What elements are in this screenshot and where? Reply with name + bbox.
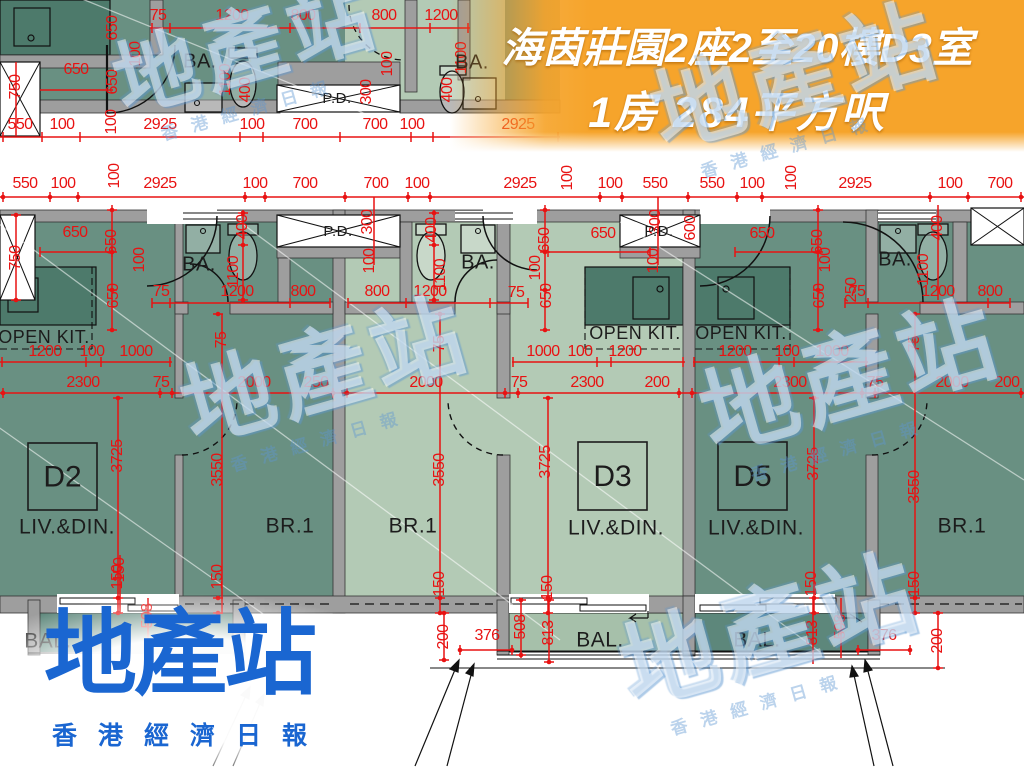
dim-node — [14, 298, 19, 303]
dim-label: 550 — [8, 116, 34, 133]
banner-title: 海茵莊園2座2至20樓D3室 — [450, 14, 1024, 74]
dim-label: 100 — [405, 175, 431, 192]
unit-label: D5 — [733, 460, 771, 493]
room-label: BR.1 — [389, 515, 438, 538]
dim-label: 100 — [127, 41, 144, 67]
dim-label: 100 — [559, 165, 576, 191]
dim-label: 1100 — [432, 258, 449, 291]
dim-label: 100 — [379, 51, 396, 77]
dim-node — [516, 391, 521, 396]
room-label: BAL. — [576, 629, 624, 652]
dim-node — [331, 391, 336, 396]
dim-label: 75 — [150, 7, 167, 24]
dim-node — [1, 195, 6, 200]
dim-node — [116, 396, 121, 401]
dim-label: 100 — [103, 109, 120, 135]
site-logo-subtitle: 香港經濟日報 — [52, 716, 328, 752]
dim-node — [913, 611, 918, 616]
dim-label: 2925 — [503, 175, 537, 192]
dim-label: 508 — [512, 614, 529, 640]
dim-node — [428, 195, 433, 200]
dim-label: 1100 — [915, 253, 932, 286]
dim-label: 2925 — [143, 116, 177, 133]
dim-label: 75 — [431, 335, 448, 352]
dim-label: 250 — [304, 374, 330, 391]
dim-label: 400 — [929, 215, 946, 241]
dim-node — [546, 396, 551, 401]
floorplan-page: 7512008008001200650100650100750650110040… — [0, 0, 1024, 768]
dim-label: 750 — [7, 74, 24, 100]
dim-node — [519, 598, 524, 603]
dim-node — [76, 195, 81, 200]
dim-node — [1019, 195, 1024, 200]
dim-node — [936, 611, 941, 616]
dim-label: 100 — [740, 175, 766, 192]
dim-label: 100 — [598, 175, 624, 192]
room-label: OPEN KIT. — [0, 327, 90, 347]
dim-label: 2000 — [237, 374, 271, 391]
dim-node — [216, 312, 221, 317]
dim-label: 100 — [775, 343, 801, 360]
dim-node — [170, 391, 175, 396]
room-label: BR.1 — [938, 515, 987, 538]
dim-label: 150 — [906, 571, 923, 597]
dim-node — [110, 208, 115, 213]
dim-label: 650 — [64, 61, 90, 78]
room-label: LIV.&DIN. — [708, 517, 804, 540]
dim-label: 800 — [291, 7, 317, 24]
room-label: BR.1 — [266, 515, 315, 538]
dim-node — [860, 391, 865, 396]
dim-node — [503, 391, 508, 396]
dim-node — [686, 195, 691, 200]
dim-label: 200 — [995, 374, 1021, 391]
dim-label: 100 — [817, 247, 834, 273]
dim-label: 100 — [106, 163, 123, 189]
unit-label: D3 — [593, 460, 631, 493]
dim-label: 2925 — [838, 175, 872, 192]
dim-label: 700 — [363, 116, 389, 133]
dim-label: 75 — [153, 374, 170, 391]
dim-node — [677, 391, 682, 396]
dim-label: 1100 — [225, 255, 242, 288]
dim-label: 100 — [645, 248, 662, 274]
dim-label: 650 — [103, 229, 120, 255]
dim-label: 200 — [645, 374, 671, 391]
dim-label: 300 — [358, 79, 375, 105]
dim-label: 1000 — [815, 343, 849, 360]
dim-label: 1200 — [718, 343, 752, 360]
dim-node — [812, 611, 817, 616]
unit-label: D2 — [43, 460, 81, 493]
dim-label: 100 — [243, 175, 269, 192]
dim-label: 2300 — [66, 374, 100, 391]
room-label: OPEN KIT. — [695, 323, 787, 343]
dim-label: 650 — [811, 283, 828, 309]
room-label: P.D. — [322, 90, 351, 107]
dim-label: 3550 — [906, 470, 923, 504]
dim-label: 1000 — [526, 343, 560, 360]
dim-node — [438, 312, 443, 317]
dim-label: 1200 — [608, 343, 642, 360]
dim-label: 3550 — [209, 453, 226, 487]
dim-label: 508 — [832, 614, 849, 640]
dim-node — [241, 243, 246, 248]
dim-label: 75 — [906, 335, 923, 352]
dim-label: 700 — [293, 175, 319, 192]
dim-node — [48, 195, 53, 200]
dim-label: 650 — [750, 225, 776, 242]
dim-label: 400 — [237, 77, 254, 103]
dim-label: 100 — [527, 255, 544, 281]
dim-label: 75 — [213, 331, 230, 348]
dim-node — [110, 328, 115, 333]
dim-node — [735, 195, 740, 200]
dim-label: 2000 — [935, 374, 969, 391]
dim-label: 75 — [508, 284, 525, 301]
dim-node — [856, 648, 861, 653]
dim-node — [873, 391, 878, 396]
dim-label: 100 — [50, 116, 76, 133]
dim-label: 75 — [849, 283, 866, 300]
dim-node — [816, 208, 821, 213]
dim-label: 2000 — [409, 374, 443, 391]
dim-node — [432, 211, 437, 216]
dim-node — [620, 195, 625, 200]
dim-label: 800 — [978, 283, 1004, 300]
room-label: P.D. — [323, 223, 352, 240]
dim-label: 3725 — [805, 447, 822, 481]
dim-label: 3725 — [109, 439, 126, 473]
dim-node — [812, 396, 817, 401]
dim-label: 300 — [359, 209, 376, 235]
dim-label: 550 — [700, 175, 726, 192]
dim-label: 100 — [783, 165, 800, 191]
dim-label: 400 — [234, 214, 251, 240]
dim-label: 75 — [153, 283, 170, 300]
banner-subtitle: 1房 284平方呎 — [450, 78, 1024, 140]
room-label: LIV.&DIN. — [19, 516, 115, 539]
dim-node — [519, 653, 524, 658]
dim-node — [343, 195, 348, 200]
dim-label: 650 — [63, 224, 89, 241]
dim-label: 100 — [361, 248, 378, 274]
dim-label: 200 — [929, 628, 946, 654]
dim-label: 1100 — [217, 63, 234, 96]
dim-node — [966, 195, 971, 200]
dim-node — [760, 195, 765, 200]
dim-label: 3550 — [431, 453, 448, 487]
dim-label: 75 — [867, 374, 884, 391]
dim-label: 2300 — [773, 374, 807, 391]
dim-label: 650 — [538, 283, 555, 309]
room-label: BA. — [182, 253, 216, 275]
dim-label: 100 — [51, 175, 77, 192]
dim-label: 1200 — [215, 7, 249, 24]
dim-label: 2925 — [143, 175, 177, 192]
dim-label: 100 — [400, 116, 426, 133]
room-label: BA. — [183, 50, 217, 72]
dim-label: 2300 — [570, 374, 604, 391]
dim-label: 650 — [105, 283, 122, 309]
room-label: BA. — [461, 251, 495, 273]
dim-label: 100 — [131, 247, 148, 273]
site-logo: 地產站 — [44, 608, 314, 701]
dim-node — [543, 208, 548, 213]
dim-node — [928, 195, 933, 200]
dim-label: 75 — [511, 374, 528, 391]
dim-label: 800 — [291, 283, 317, 300]
title-banner: 海茵莊園2座2至20樓D3室 1房 284平方呎 — [450, 0, 1024, 152]
dim-node — [908, 648, 913, 653]
dim-node — [158, 391, 163, 396]
dim-label: 1000 — [119, 343, 153, 360]
dim-node — [14, 213, 19, 218]
dim-node — [543, 328, 548, 333]
room-label: BAL. — [733, 629, 781, 652]
dim-node — [690, 391, 695, 396]
dim-label: 813 — [540, 620, 557, 646]
dim-label: 376 — [872, 627, 898, 644]
dim-label: 700 — [293, 116, 319, 133]
dim-node — [510, 648, 515, 653]
dim-node — [913, 312, 918, 317]
room-label: OPEN KIT. — [589, 323, 681, 343]
dim-label: 800 — [365, 283, 391, 300]
dim-node — [547, 660, 552, 665]
banner-bottom-fade — [450, 132, 1024, 152]
dim-label: 650 — [104, 69, 121, 95]
dim-label: 650 — [104, 15, 121, 41]
dim-label: 100 — [938, 175, 964, 192]
dim-label: 800 — [372, 7, 398, 24]
dim-label: 600 — [682, 215, 699, 241]
room-label: P.D. — [644, 223, 673, 240]
dim-label: 3725 — [537, 445, 554, 479]
dim-node — [406, 195, 411, 200]
dim-label: 700 — [988, 175, 1014, 192]
dim-node — [345, 391, 350, 396]
dim-label: 750 — [7, 245, 24, 271]
dim-node — [1, 391, 6, 396]
dim-label: 150 — [803, 571, 820, 597]
dim-label: 100 — [240, 116, 266, 133]
dim-node — [598, 195, 603, 200]
dim-node — [1019, 391, 1024, 396]
dim-node — [936, 666, 941, 671]
dim-label: 400 — [423, 217, 440, 243]
dim-label: 100 — [568, 343, 594, 360]
dim-label: 550 — [643, 175, 669, 192]
dim-label: 650 — [536, 227, 553, 253]
dim-node — [243, 195, 248, 200]
dim-node — [263, 195, 268, 200]
room-label: LIV.&DIN. — [568, 517, 664, 540]
dim-label: 150 — [539, 575, 556, 601]
dim-label: 813 — [804, 620, 821, 646]
dim-node — [546, 611, 551, 616]
room-label: BA. — [878, 248, 912, 270]
dim-label: 650 — [591, 225, 617, 242]
dim-label: 700 — [364, 175, 390, 192]
dim-node — [816, 328, 821, 333]
dim-label: 550 — [13, 175, 39, 192]
